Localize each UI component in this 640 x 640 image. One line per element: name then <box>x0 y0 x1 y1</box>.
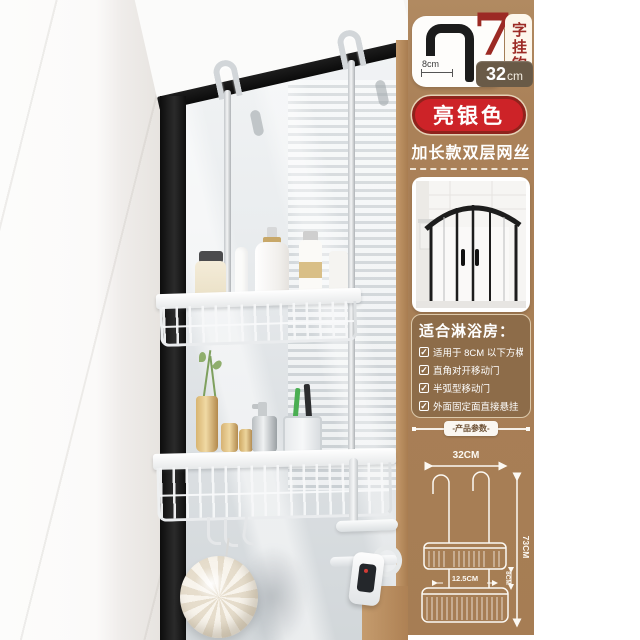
suitability-title: 适合淋浴房： <box>419 320 523 341</box>
color-variant-label: 亮银色 <box>433 100 505 130</box>
shower-room-thumbnail <box>412 177 530 312</box>
check-icon: ✓ <box>419 401 429 411</box>
towel-bar <box>336 519 398 532</box>
gold-vase <box>196 396 218 452</box>
product-listing-image: 8cm 7 字挂钩 32 cm 亮银色 加长款双层网丝 <box>0 0 640 640</box>
lotion-bottle-label <box>299 262 322 278</box>
shower-room-illustration <box>416 181 526 308</box>
checklist-item: ✓ 直角对开移动门 <box>419 363 523 377</box>
lifestyle-photo <box>0 0 408 640</box>
hook-width-label: 8cm <box>422 59 439 69</box>
suitability-panel: 适合淋浴房： ✓ 适用于 8CM 以下方横梁 ✓ 直角对开移动门 ✓ 半弧型移动… <box>411 314 531 418</box>
device-screen <box>356 563 376 593</box>
upper-basket-wires <box>159 301 357 347</box>
product-subtitle: 加长款双层网丝 <box>408 139 534 163</box>
checklist-item: ✓ 适用于 8CM 以下方横梁 <box>419 345 523 359</box>
bath-loofah <box>180 556 258 638</box>
accessory-hook <box>207 517 221 545</box>
gold-perfume-bottle <box>239 429 253 452</box>
hook-width-dimension-line <box>421 72 453 73</box>
gold-perfume-bottle <box>221 423 238 452</box>
info-sidebar: 8cm 7 字挂钩 32 cm 亮银色 加长款双层网丝 <box>408 0 534 635</box>
diagram-depth-label: 12.5CM <box>452 574 478 583</box>
dashed-divider <box>410 168 528 170</box>
door-vertical-frame <box>160 96 186 640</box>
checklist-label: 外面固定面直接悬挂 <box>433 399 519 413</box>
toothbrush-cup <box>283 416 322 454</box>
check-icon: ✓ <box>419 383 429 393</box>
checklist-label: 半弧型移动门 <box>433 381 490 395</box>
color-variant-badge: 亮银色 <box>412 96 526 134</box>
check-icon: ✓ <box>419 365 429 375</box>
checklist-item: ✓ 半弧型移动门 <box>419 381 523 395</box>
checklist-item: ✓ 外面固定面直接悬挂 <box>419 399 523 413</box>
dimension-diagram: 32CM 73CM 8CM 12.5CM <box>413 447 529 633</box>
bar-length-value: 32 <box>486 64 506 85</box>
diagram-height-label: 73CM <box>521 536 529 559</box>
params-section-label: -产品参数- <box>444 421 498 436</box>
checklist-label: 直角对开移动门 <box>433 363 500 377</box>
soap-dispenser <box>252 416 277 452</box>
diagram-tier-gap-label: 8CM <box>504 571 511 585</box>
diagram-width-label: 32CM <box>453 450 480 461</box>
marble-wall <box>0 0 164 640</box>
checklist-label: 适用于 8CM 以下方横梁 <box>433 345 523 359</box>
shower-control-device <box>348 551 385 606</box>
check-icon: ✓ <box>419 347 429 357</box>
plant-leaf <box>199 352 206 362</box>
hanging-rail-right <box>348 60 355 458</box>
bar-length-badge: 32 cm <box>476 61 533 87</box>
shower-pipe <box>349 458 358 524</box>
bar-length-unit: cm <box>507 65 523 83</box>
